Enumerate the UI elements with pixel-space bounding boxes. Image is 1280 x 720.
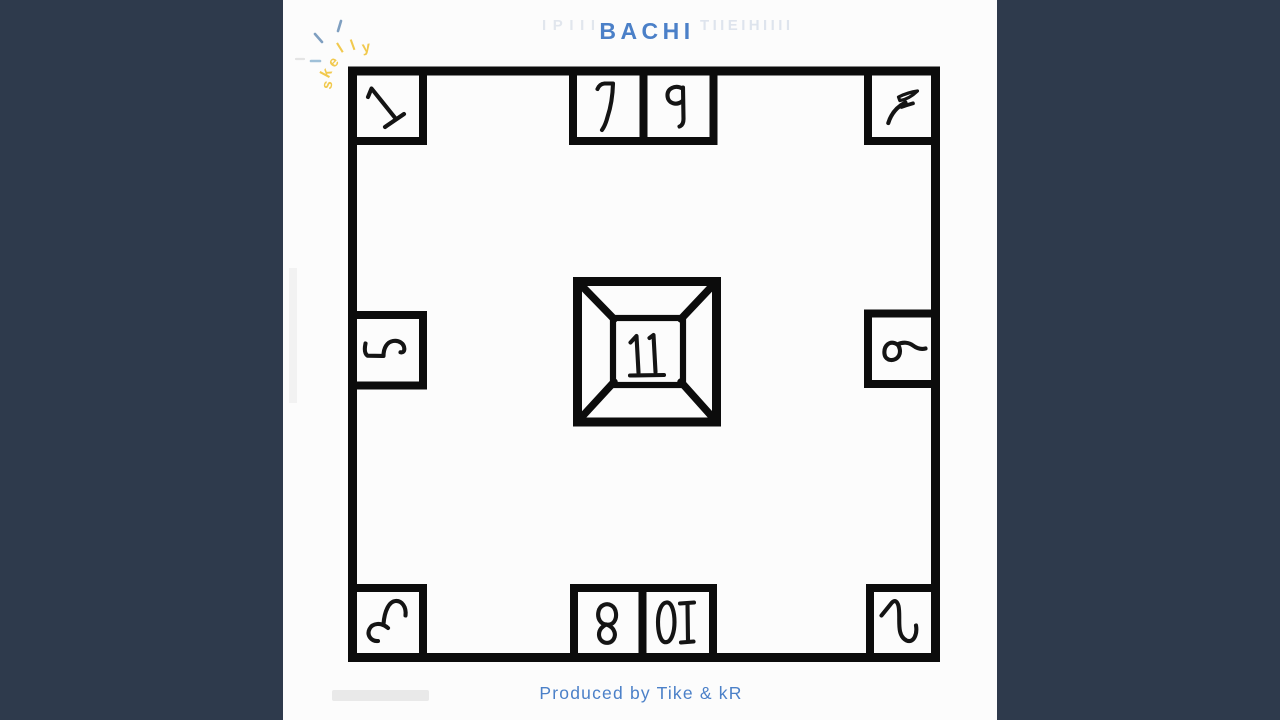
svg-text:BACHI: BACHI <box>599 18 694 44</box>
svg-text:Produced by Tike & kR: Produced by Tike & kR <box>539 683 742 703</box>
svg-text:TIIEIHIIII: TIIEIHIIII <box>700 17 792 34</box>
